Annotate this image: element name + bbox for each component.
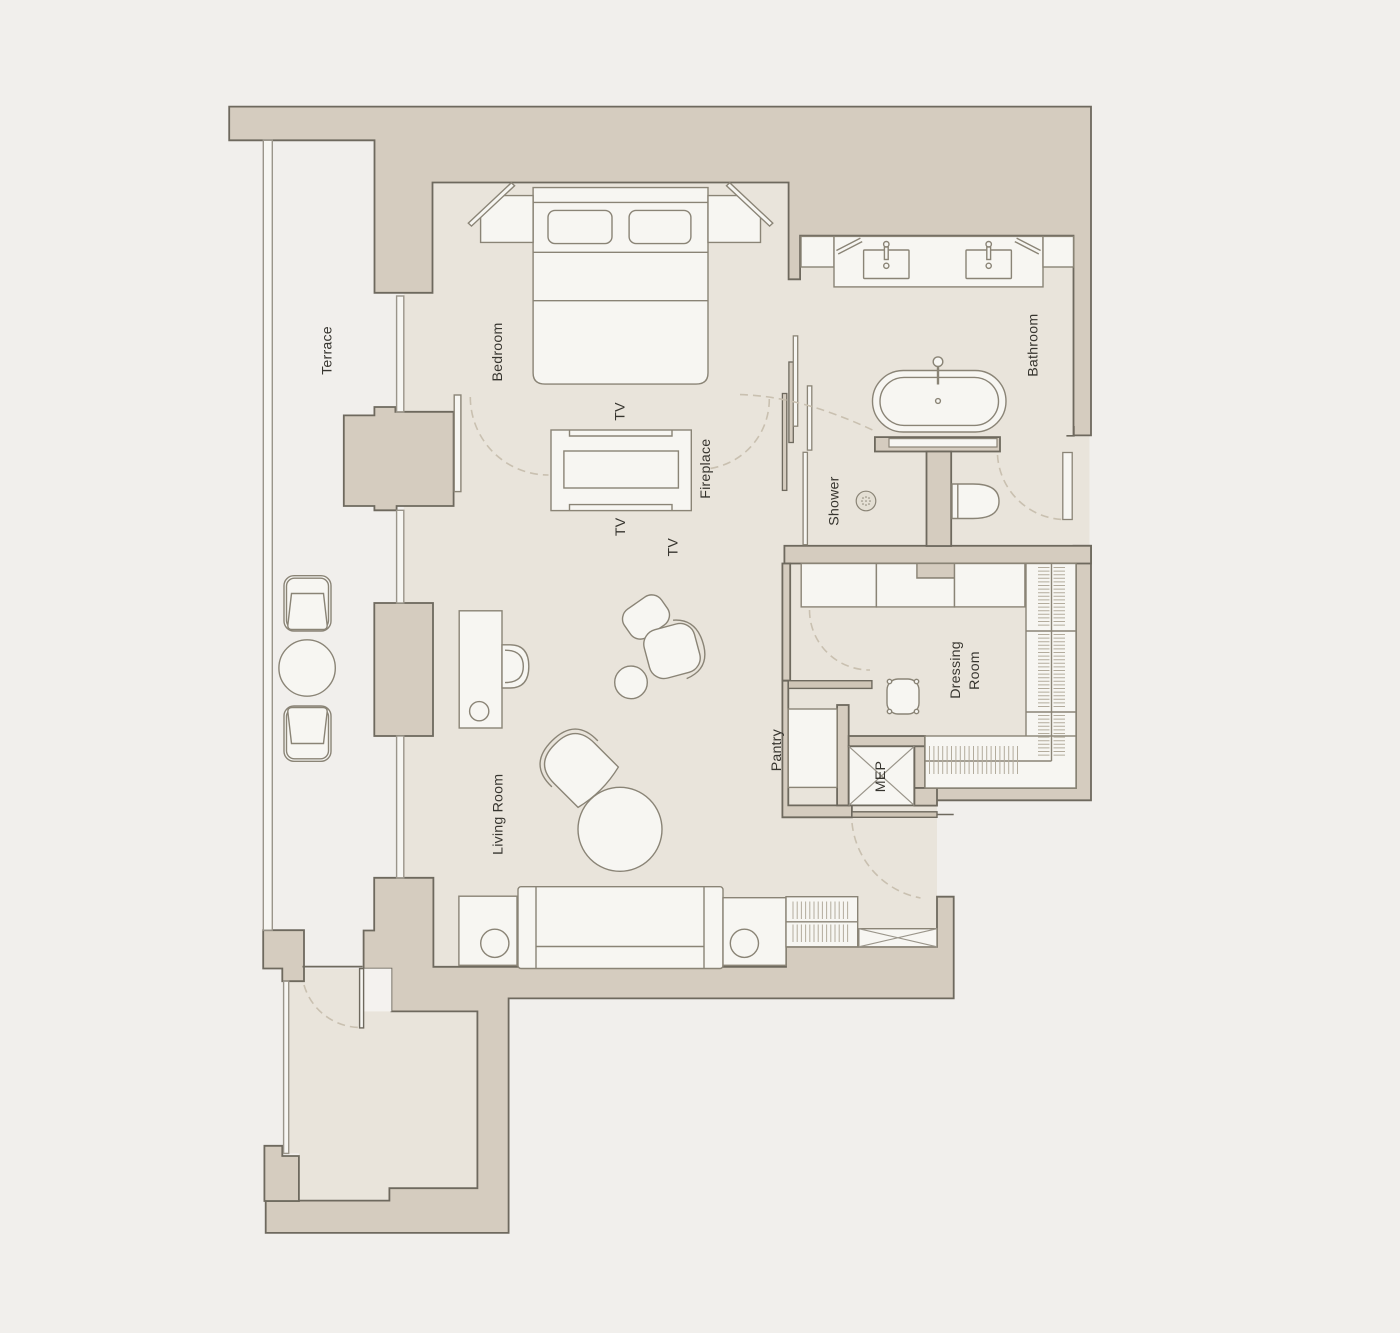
svg-text:TV: TV (613, 402, 629, 421)
svg-text:Shower: Shower (827, 476, 843, 525)
svg-text:Living Room: Living Room (490, 774, 506, 855)
svg-text:TV: TV (665, 538, 681, 557)
svg-text:Fireplace: Fireplace (698, 439, 714, 499)
svg-text:Pantry: Pantry (769, 728, 785, 771)
svg-text:Bedroom: Bedroom (490, 323, 506, 382)
svg-text:Room: Room (967, 651, 983, 690)
svg-text:Bathroom: Bathroom (1026, 314, 1042, 377)
svg-text:Terrace: Terrace (320, 326, 336, 375)
svg-text:TV: TV (613, 517, 629, 536)
svg-text:MEP: MEP (873, 761, 889, 792)
svg-text:Dressing: Dressing (948, 641, 964, 699)
